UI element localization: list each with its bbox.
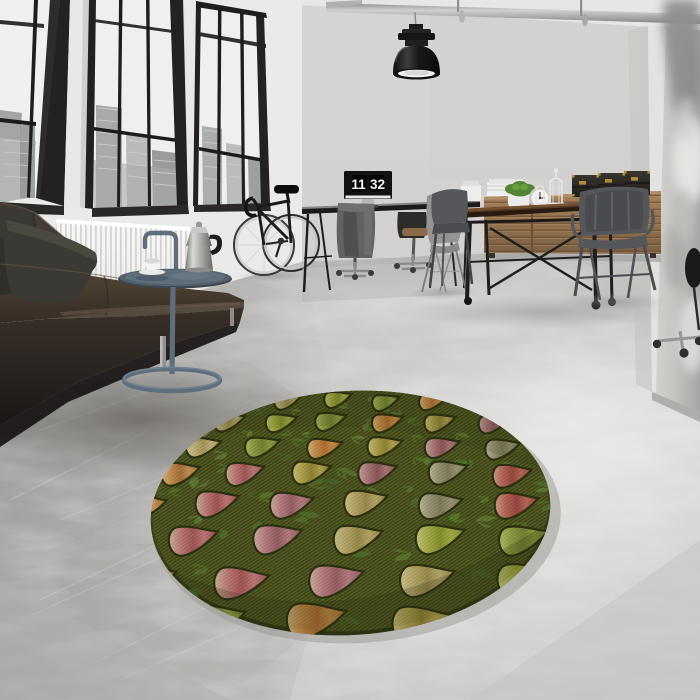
svg-text:11: 11 [351,177,366,192]
svg-text:32: 32 [370,177,385,192]
